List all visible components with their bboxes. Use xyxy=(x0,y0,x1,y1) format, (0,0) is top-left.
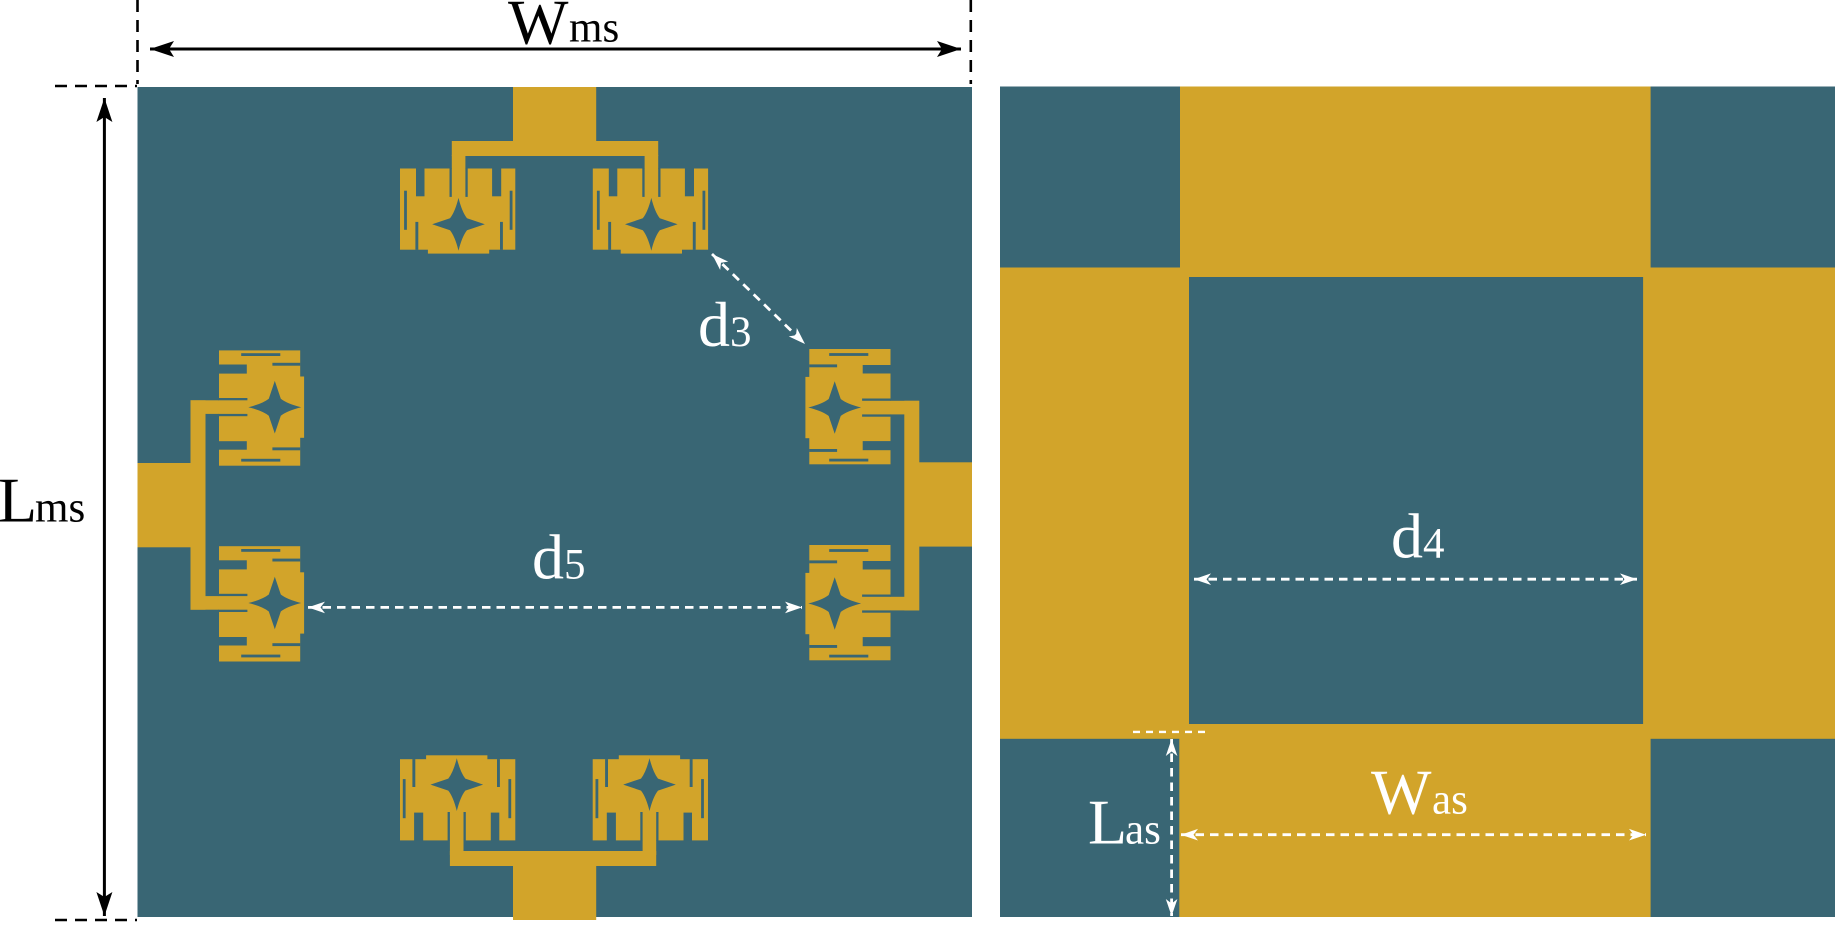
svg-text:d: d xyxy=(532,522,564,593)
svg-text:as: as xyxy=(1432,777,1468,824)
svg-text:4: 4 xyxy=(1423,521,1445,568)
svg-text:d: d xyxy=(698,289,730,360)
svg-text:3: 3 xyxy=(730,309,752,356)
svg-text:W: W xyxy=(1371,757,1432,828)
svg-text:ms: ms xyxy=(35,485,85,532)
svg-text:L: L xyxy=(0,465,37,536)
svg-text:W: W xyxy=(508,0,569,58)
svg-text:as: as xyxy=(1125,807,1161,854)
svg-text:L: L xyxy=(1088,787,1127,858)
svg-text:5: 5 xyxy=(564,542,586,589)
svg-text:d: d xyxy=(1391,501,1423,572)
svg-text:ms: ms xyxy=(569,5,619,52)
